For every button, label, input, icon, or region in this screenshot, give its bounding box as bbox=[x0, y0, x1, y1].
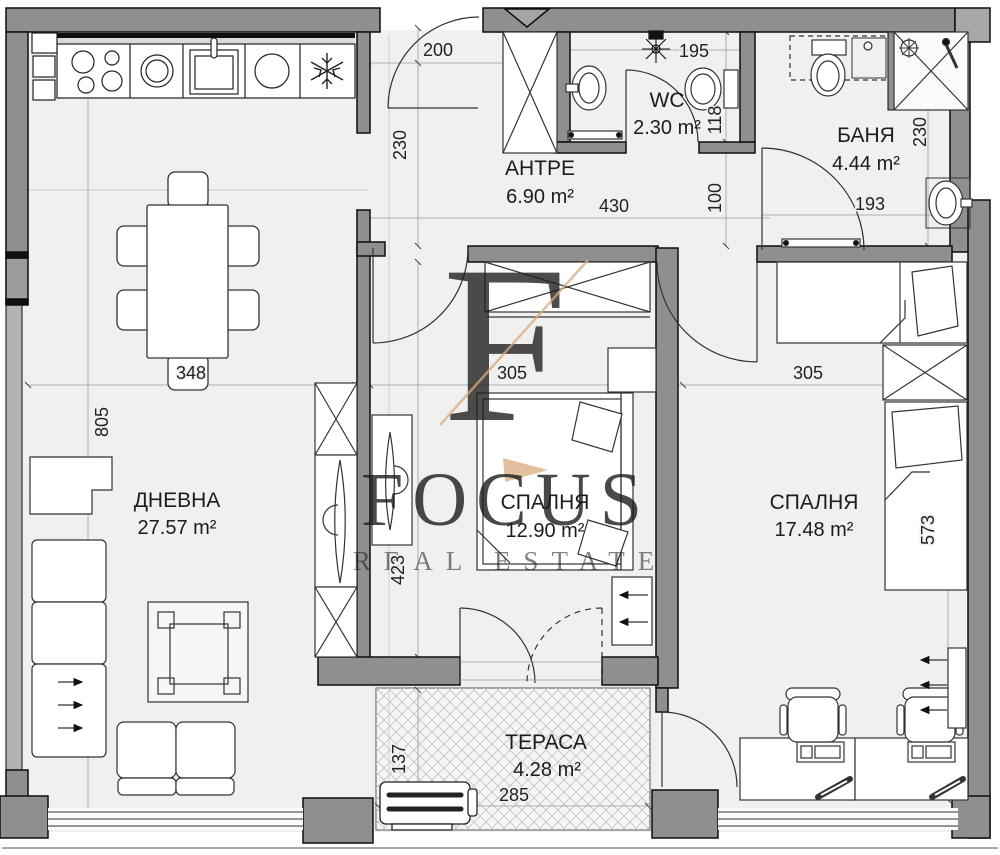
desk-left bbox=[740, 738, 855, 800]
dim-285: 285 bbox=[499, 785, 529, 805]
dim-348: 348 bbox=[176, 363, 206, 383]
dim-200: 200 bbox=[423, 40, 453, 60]
dim-118: 118 bbox=[705, 106, 725, 135]
wall-right bbox=[968, 200, 990, 838]
dim-430: 430 bbox=[599, 196, 629, 216]
dim-137: 137 bbox=[389, 744, 409, 774]
label-wc-name: WC bbox=[650, 89, 685, 112]
dim-230-hall: 230 bbox=[390, 130, 410, 160]
wall-divider-living bbox=[357, 210, 370, 667]
label-terrace-area: 4.28 m² bbox=[513, 759, 581, 781]
dim-805: 805 bbox=[92, 407, 112, 437]
floor-plan-page: F FOCUS REAL ESTATE ДНЕВНА 27.57 m² СПАЛ… bbox=[0, 0, 1000, 855]
corner-sofa bbox=[32, 540, 106, 757]
kitchen-counter bbox=[32, 33, 355, 100]
shower-icon bbox=[894, 32, 968, 110]
watermark-monogram: F bbox=[442, 219, 567, 469]
office-chair bbox=[780, 688, 846, 742]
label-hall-area: 6.90 m² bbox=[506, 186, 574, 208]
dim-100: 100 bbox=[705, 183, 725, 213]
dim-193: 193 bbox=[855, 194, 885, 214]
tv-unit-living bbox=[315, 383, 357, 657]
sofa bbox=[117, 722, 235, 795]
label-bedroom1-name: СПАЛНЯ bbox=[501, 491, 590, 514]
label-bath-area: 4.44 m² bbox=[832, 153, 900, 175]
dim-230-bath: 230 bbox=[910, 117, 930, 147]
radiator bbox=[568, 131, 622, 139]
dim-305-bedroom2: 305 bbox=[793, 363, 823, 383]
dim-305-bedroom1: 305 bbox=[497, 363, 527, 383]
label-bedroom2-name: СПАЛНЯ bbox=[770, 491, 859, 514]
dim-423: 423 bbox=[388, 555, 408, 585]
label-wc-area: 2.30 m² bbox=[633, 117, 701, 139]
dim-573: 573 bbox=[918, 515, 938, 545]
nightstand bbox=[608, 348, 656, 392]
desk-right bbox=[855, 738, 968, 800]
pillow-icon bbox=[892, 406, 962, 468]
single-bed-top bbox=[777, 262, 967, 343]
label-bath-name: БАНЯ bbox=[837, 124, 895, 147]
label-bedroom1-area: 12.90 m² bbox=[506, 520, 585, 542]
wall-left bbox=[6, 32, 28, 258]
pillow-icon bbox=[912, 266, 958, 336]
ac-unit bbox=[380, 782, 477, 830]
towel-radiator bbox=[782, 239, 860, 247]
toilet-icon bbox=[685, 68, 738, 110]
radiator bbox=[612, 577, 652, 645]
wall-top-right bbox=[483, 8, 955, 32]
coffee-table bbox=[148, 602, 248, 702]
single-bed-right bbox=[885, 402, 967, 590]
label-living-name: ДНЕВНА bbox=[134, 489, 221, 512]
label-bedroom2-area: 17.48 m² bbox=[775, 519, 854, 541]
floor-plan-drawing: F FOCUS REAL ESTATE ДНЕВНА 27.57 m² СПАЛ… bbox=[0, 0, 1000, 855]
toilet-icon bbox=[811, 40, 846, 96]
label-terrace-name: ТЕРАСА bbox=[505, 731, 587, 754]
dim-195: 195 bbox=[679, 41, 709, 61]
wall-top-left bbox=[6, 8, 380, 32]
label-living-area: 27.57 m² bbox=[138, 517, 217, 539]
label-hall-name: АНТРЕ bbox=[505, 157, 575, 180]
